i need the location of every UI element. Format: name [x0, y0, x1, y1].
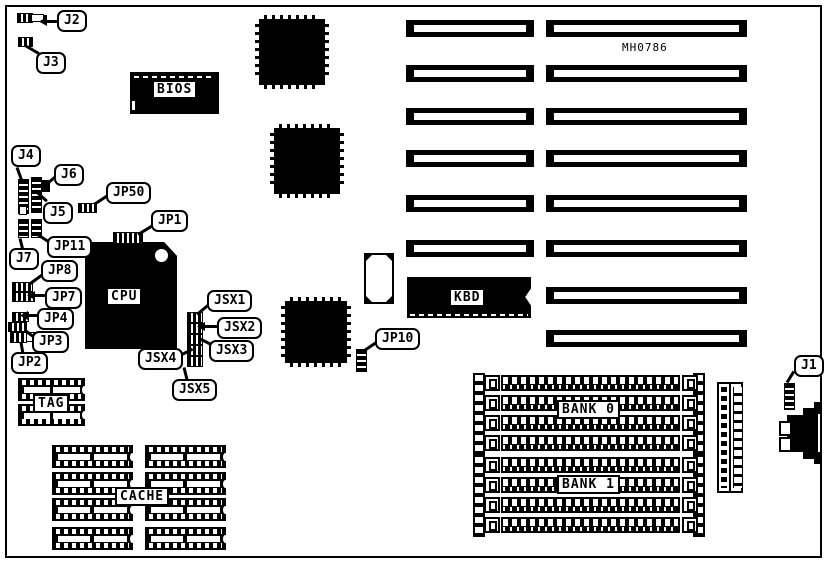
- simm-latch: [682, 477, 698, 493]
- jumper-block: [187, 356, 203, 367]
- simm-latch: [484, 395, 500, 411]
- isa-slot: [546, 150, 747, 167]
- callout-jsx2: JSX2: [217, 317, 262, 339]
- simm-latch: [484, 517, 500, 533]
- jumper-block: [18, 219, 29, 238]
- power-pins: [721, 387, 727, 488]
- simm-latch: [484, 477, 500, 493]
- isa-slot: [406, 195, 534, 212]
- simm-socket: [501, 435, 680, 451]
- isa-slot: [546, 240, 747, 257]
- bios-label: BIOS: [152, 80, 197, 99]
- power-connector: [717, 382, 743, 493]
- simm-socket: [501, 457, 680, 473]
- tag-label: TAG: [33, 394, 69, 413]
- qfp-chip: [274, 128, 340, 194]
- callout-jp3: JP3: [32, 331, 69, 353]
- simm-latch: [682, 457, 698, 473]
- callout-j5: J5: [43, 202, 73, 224]
- bank0-label: BANK 0: [557, 400, 620, 419]
- callout-tail: [203, 325, 218, 328]
- isa-slot: [406, 108, 534, 125]
- callout-j6: J6: [54, 164, 84, 186]
- power-divider: [729, 384, 731, 491]
- crystal-socket: [364, 253, 394, 304]
- callout-jsx5: JSX5: [172, 379, 217, 401]
- callout-jp7: JP7: [45, 287, 82, 309]
- isa-slot: [406, 240, 534, 257]
- socket-corner: [386, 255, 392, 261]
- callout-jsx3: JSX3: [209, 340, 254, 362]
- isa-slot: [546, 287, 747, 304]
- simm-latch: [682, 435, 698, 451]
- jumper-block: [10, 332, 27, 343]
- dip-chip: [145, 527, 226, 550]
- dip-chip: [52, 527, 133, 550]
- callout-jsx4: JSX4: [138, 348, 183, 370]
- callout-jp8: JP8: [41, 260, 78, 282]
- keyboard-din-connector: [814, 402, 820, 414]
- callout-jsx1: JSX1: [207, 290, 252, 312]
- jumper-cap: [19, 206, 27, 215]
- qfp-pins: [264, 15, 320, 20]
- jumper-block: [784, 383, 795, 410]
- isa-slot: [546, 65, 747, 82]
- cache-label: CACHE: [115, 487, 169, 506]
- callout-jp10: JP10: [375, 328, 420, 350]
- simm-latch: [484, 375, 500, 391]
- socket-corner: [386, 296, 392, 302]
- keyboard-din-connector: [814, 452, 820, 464]
- din-mount-tab: [779, 421, 792, 436]
- qfp-pins: [264, 84, 320, 89]
- simm-latch: [484, 457, 500, 473]
- isa-slot: [546, 330, 747, 347]
- callout-jp50: JP50: [106, 182, 151, 204]
- isa-slot: [546, 108, 747, 125]
- isa-slot: [546, 195, 747, 212]
- simm-latch: [484, 497, 500, 513]
- qfp-chip: [285, 301, 347, 363]
- jumper-block: [187, 312, 203, 323]
- callout-j4: J4: [11, 145, 41, 167]
- qfp-pins: [290, 297, 342, 302]
- qfp-pins: [279, 124, 335, 129]
- part-number: MH0786: [622, 41, 668, 54]
- simm-latch: [682, 415, 698, 431]
- simm-latch: [682, 497, 698, 513]
- callout-j1: J1: [794, 355, 824, 377]
- cpu-pin1-dot: [155, 249, 168, 262]
- qfp-pins: [290, 362, 342, 367]
- simm-socket: [501, 375, 680, 391]
- simm-socket: [501, 497, 680, 513]
- socket-corner: [366, 255, 372, 261]
- qfp-chip: [259, 19, 325, 85]
- cpu-label: CPU: [106, 287, 142, 306]
- din-mount-tab: [779, 437, 792, 452]
- callout-j3: J3: [36, 52, 66, 74]
- qfp-pins: [281, 306, 286, 358]
- socket-corner: [366, 296, 372, 302]
- isa-slot: [406, 20, 534, 37]
- callout-j2: J2: [57, 10, 87, 32]
- jumper-block: [356, 349, 367, 372]
- simm-latch: [484, 435, 500, 451]
- bank1-label: BANK 1: [557, 475, 620, 494]
- simm-socket: [501, 517, 680, 533]
- qfp-pins: [346, 306, 351, 358]
- isa-slot: [406, 65, 534, 82]
- simm-latch: [484, 415, 500, 431]
- qfp-pins: [255, 24, 260, 80]
- isa-slot: [546, 20, 747, 37]
- qfp-pins: [324, 24, 329, 80]
- simm-latch: [682, 395, 698, 411]
- power-terminals: [733, 387, 743, 488]
- simm-latch: [682, 375, 698, 391]
- motherboard-diagram: BIOS CPU KBD MH0786 BANK 0 BANK 1 TAG CA…: [0, 0, 827, 563]
- kbd-label: KBD: [449, 288, 485, 307]
- callout-jp2: JP2: [11, 352, 48, 374]
- bios-pin1-mark: [132, 101, 135, 110]
- callout-j7: J7: [9, 248, 39, 270]
- dip-chip: [52, 445, 133, 468]
- callout-jp4: JP4: [37, 308, 74, 330]
- qfp-pins: [339, 133, 344, 189]
- qfp-pins: [270, 133, 275, 189]
- kbd-notch: [524, 287, 532, 307]
- qfp-pins: [279, 193, 335, 198]
- kbd-socket-dash: [410, 314, 528, 316]
- bios-socket-dash: [134, 76, 215, 78]
- callout-jp11: JP11: [47, 236, 92, 258]
- dip-chip: [145, 445, 226, 468]
- simm-latch: [682, 517, 698, 533]
- isa-slot: [406, 150, 534, 167]
- callout-jp1: JP1: [151, 210, 188, 232]
